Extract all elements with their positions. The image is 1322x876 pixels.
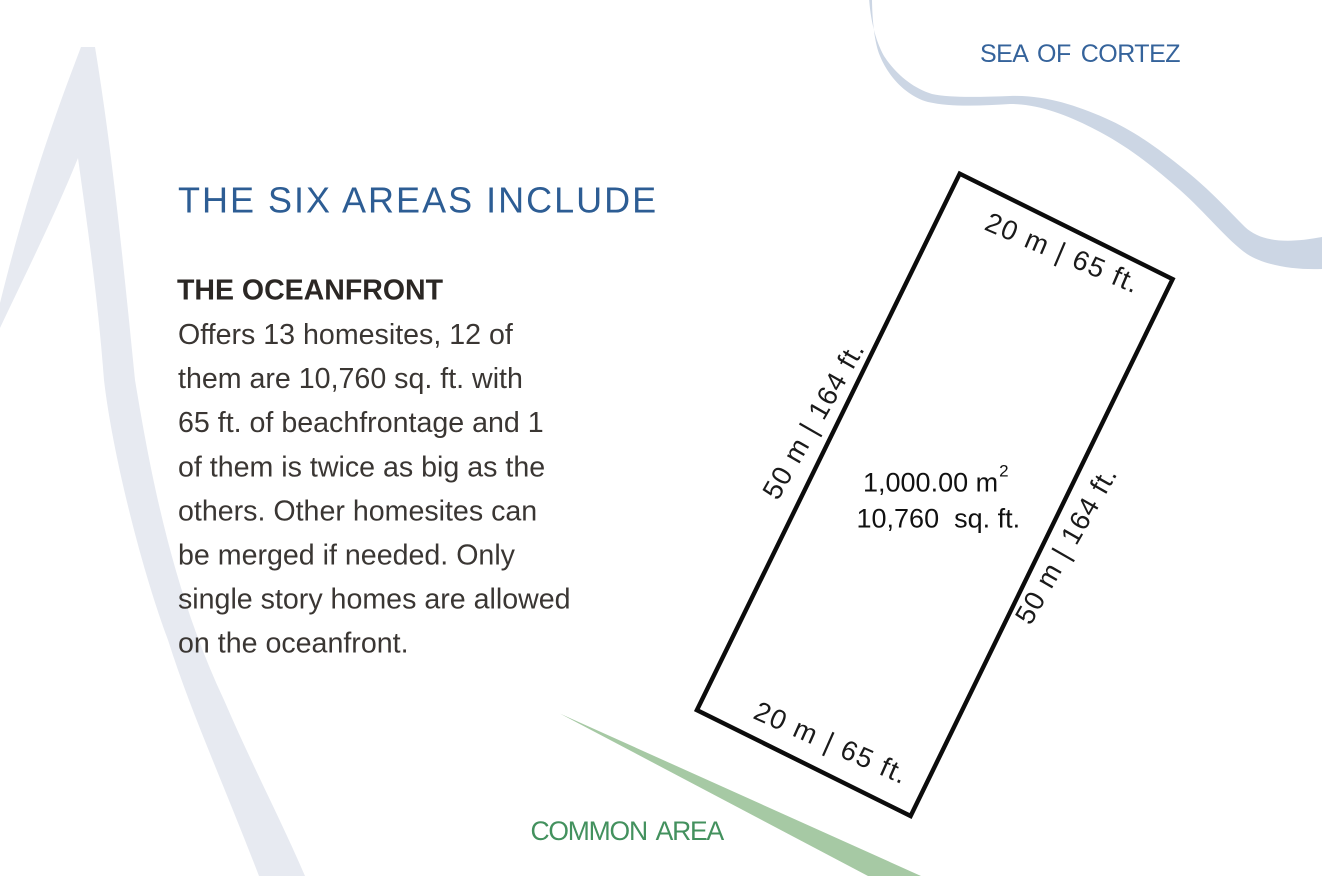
svg-text:10,760 sq. ft.: 10,760 sq. ft. (857, 504, 1021, 534)
svg-text:be merged if needed. Only: be merged if needed. Only (178, 540, 516, 572)
svg-text:Offers 13 homesites, 12 of: Offers 13 homesites, 12 of (178, 319, 513, 351)
svg-text:65 ft. of beachfrontage and 1: 65 ft. of beachfrontage and 1 (178, 407, 544, 439)
svg-text:1,000.00 m2: 1,000.00 m2 (863, 462, 1009, 498)
svg-text:of them is twice as big as the: of them is twice as big as the (178, 451, 545, 483)
svg-text:single story homes are allowed: single story homes are allowed (178, 584, 571, 616)
svg-text:on the oceanfront.: on the oceanfront. (178, 628, 409, 660)
svg-text:others. Other homesites can: others. Other homesites can (178, 495, 537, 527)
svg-text:COMMON AREA: COMMON AREA (530, 816, 724, 846)
svg-text:THE OCEANFRONT: THE OCEANFRONT (177, 275, 444, 307)
svg-text:THE SIX AREAS INCLUDE: THE SIX AREAS INCLUDE (178, 180, 658, 221)
svg-text:SEA OF CORTEZ: SEA OF CORTEZ (980, 40, 1180, 68)
svg-text:them are 10,760 sq. ft. with: them are 10,760 sq. ft. with (178, 363, 523, 395)
